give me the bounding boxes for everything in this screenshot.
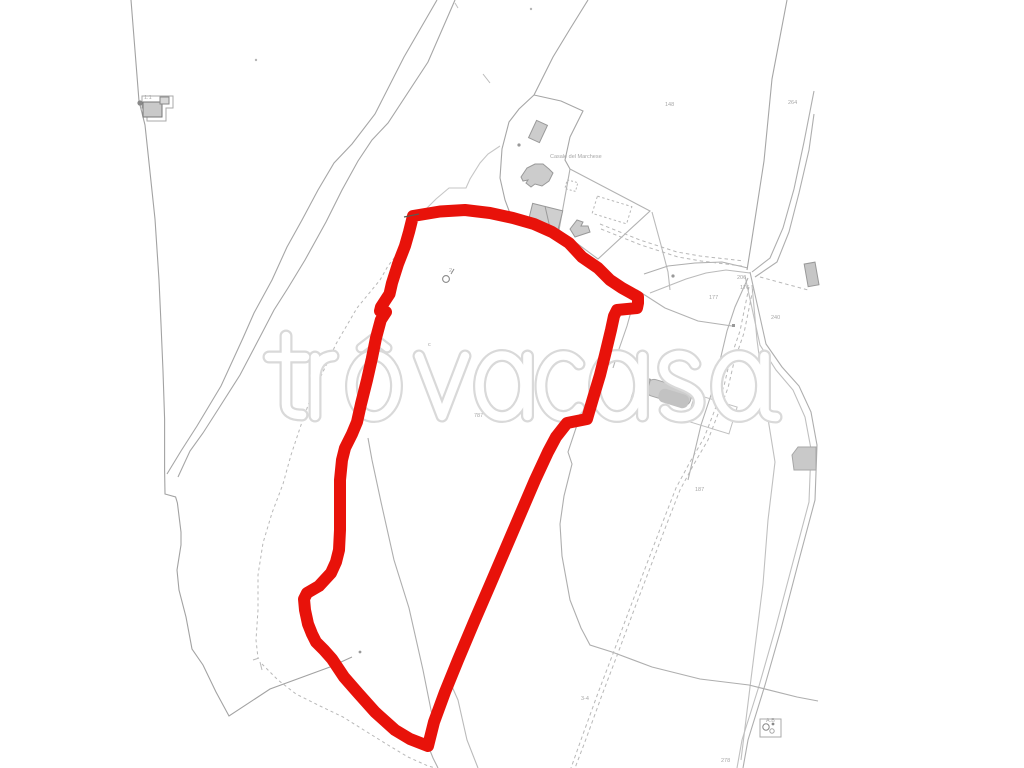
- svg-text:176: 176: [740, 285, 749, 291]
- svg-text:787: 787: [474, 413, 483, 419]
- svg-text:Casale del Marchese: Casale del Marchese: [550, 154, 602, 160]
- svg-text:c: c: [428, 342, 431, 348]
- svg-text:2: 2: [449, 268, 452, 274]
- svg-text:A.B: A.B: [766, 718, 775, 724]
- svg-text:177: 177: [709, 295, 718, 301]
- svg-text:264: 264: [788, 100, 797, 106]
- svg-text:187: 187: [695, 487, 704, 493]
- svg-text:3-4: 3-4: [581, 696, 589, 702]
- svg-text:240: 240: [771, 315, 780, 321]
- svg-text:1.1: 1.1: [144, 95, 152, 101]
- svg-text:206: 206: [737, 275, 746, 281]
- svg-text:148: 148: [665, 102, 674, 108]
- svg-text:278: 278: [721, 758, 730, 764]
